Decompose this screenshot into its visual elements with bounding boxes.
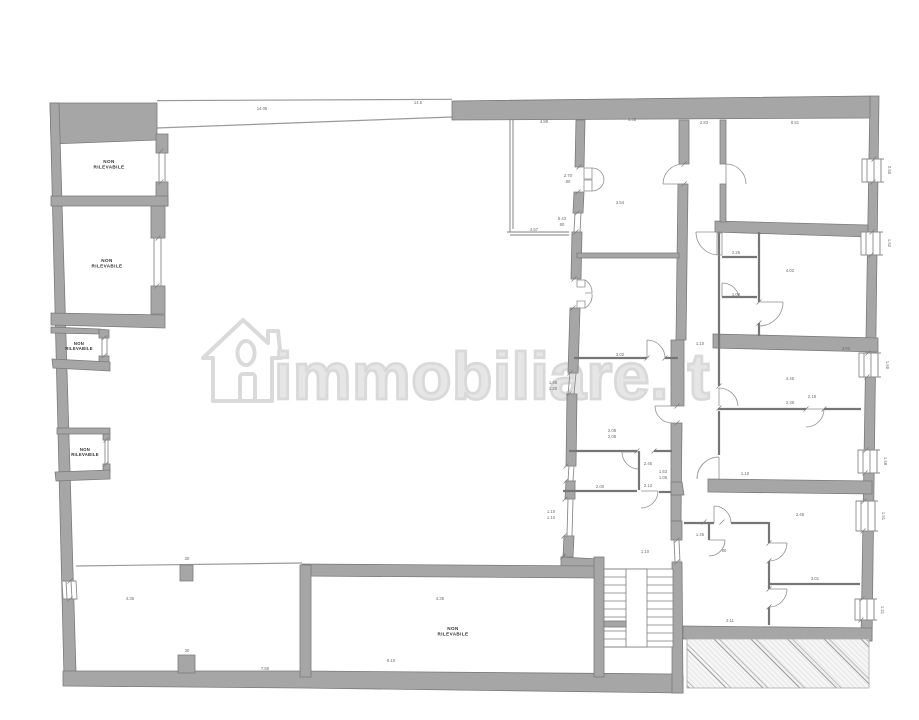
svg-text:1.08: 1.08 (732, 292, 741, 297)
svg-text:30: 30 (185, 556, 190, 561)
svg-text:4.02: 4.02 (842, 346, 851, 351)
svg-text:2.26: 2.26 (732, 250, 741, 255)
svg-text:80: 80 (566, 179, 571, 184)
svg-text:1.51: 1.51 (881, 512, 886, 521)
svg-text:4.45: 4.45 (786, 376, 795, 381)
svg-text:2.83: 2.83 (700, 120, 709, 125)
svg-text:2.50: 2.50 (887, 166, 892, 175)
svg-text:1.10: 1.10 (641, 549, 650, 554)
svg-text:immobiliare.it: immobiliare.it (274, 339, 710, 413)
svg-text:7.55: 7.55 (261, 666, 270, 671)
svg-text:4.57: 4.57 (530, 227, 539, 232)
svg-text:8.51: 8.51 (791, 120, 800, 125)
svg-text:9.10: 9.10 (387, 658, 396, 663)
svg-text:2.08: 2.08 (608, 434, 617, 439)
svg-text:1.45: 1.45 (696, 532, 705, 537)
svg-text:2.48: 2.48 (796, 512, 805, 517)
svg-text:2.45: 2.45 (644, 461, 653, 466)
svg-text:5.43: 5.43 (558, 216, 567, 221)
svg-text:2.00: 2.00 (596, 484, 605, 489)
svg-text:1.46: 1.46 (549, 380, 558, 385)
svg-text:1.10: 1.10 (696, 341, 705, 346)
svg-text:1.20: 1.20 (549, 386, 558, 391)
svg-text:80: 80 (722, 548, 727, 553)
svg-text:4.48: 4.48 (628, 117, 637, 122)
svg-text:RILEVABILE: RILEVABILE (438, 632, 469, 637)
svg-text:2.19: 2.19 (808, 394, 817, 399)
svg-text:1.21: 1.21 (880, 606, 885, 615)
svg-text:2.36: 2.36 (786, 400, 795, 405)
svg-text:RILEVABILE: RILEVABILE (71, 452, 99, 457)
svg-text:3.01: 3.01 (811, 576, 820, 581)
svg-text:2.11: 2.11 (726, 618, 735, 623)
svg-text:3.02: 3.02 (616, 352, 625, 357)
svg-text:NON: NON (101, 258, 113, 263)
svg-text:1.60: 1.60 (885, 361, 890, 370)
svg-text:4.02: 4.02 (786, 268, 795, 273)
svg-text:1.10: 1.10 (547, 515, 556, 520)
svg-text:1.05: 1.05 (659, 475, 668, 480)
svg-text:RILEVABILE: RILEVABILE (92, 264, 123, 269)
svg-text:1.52: 1.52 (887, 239, 892, 248)
svg-text:4.35: 4.35 (126, 596, 135, 601)
svg-text:1.10: 1.10 (741, 471, 750, 476)
svg-text:4.35: 4.35 (436, 596, 445, 601)
svg-text:2.08: 2.08 (608, 428, 617, 433)
svg-text:2.70: 2.70 (564, 173, 573, 178)
svg-text:1.48: 1.48 (883, 457, 888, 466)
svg-text:1.63: 1.63 (659, 469, 668, 474)
svg-text:2.13: 2.13 (644, 483, 653, 488)
svg-text:80: 80 (560, 222, 565, 227)
svg-text:30: 30 (185, 648, 190, 653)
svg-text:14.05: 14.05 (257, 106, 268, 111)
svg-text:14.5: 14.5 (414, 100, 423, 105)
svg-text:3.54: 3.54 (616, 200, 625, 205)
svg-text:RILEVABILE: RILEVABILE (65, 346, 93, 351)
svg-text:4.88: 4.88 (540, 119, 549, 124)
svg-text:RILEVABILE: RILEVABILE (94, 165, 125, 170)
svg-text:NON: NON (447, 626, 459, 631)
svg-text:NON: NON (103, 159, 115, 164)
svg-text:1.10: 1.10 (547, 509, 556, 514)
